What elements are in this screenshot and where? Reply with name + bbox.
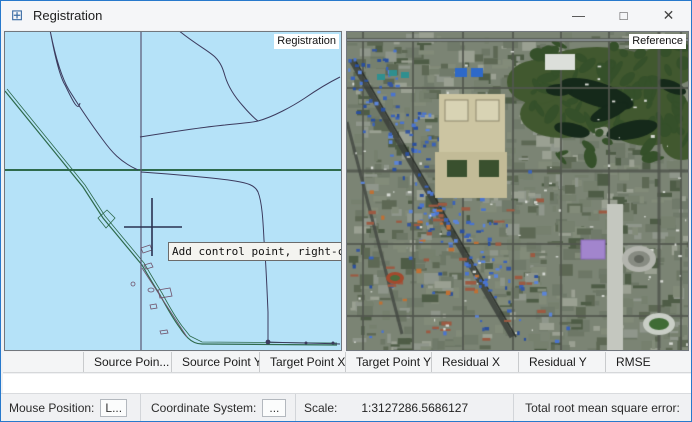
column-header-rmse[interactable]: RMSE [606, 352, 691, 372]
registration-window-icon: ⊞ [9, 8, 25, 24]
column-header-target-y[interactable]: Target Point Y [346, 352, 432, 372]
column-header-source-x[interactable]: Source Poin... [84, 352, 172, 372]
close-button[interactable]: ✕ [646, 1, 691, 30]
coordinate-system-label: Coordinate System: [151, 401, 256, 415]
vector-map-drawing [5, 32, 341, 350]
minimize-button[interactable]: — [556, 1, 601, 30]
coordinate-system-section: Coordinate System: ... [141, 394, 296, 421]
window-title: Registration [33, 8, 102, 23]
mouse-position-value[interactable]: L... [100, 399, 127, 417]
map-node-dot-3 [332, 342, 335, 345]
mouse-position-section: Mouse Position: L... [1, 394, 141, 421]
total-rmse-label: Total root mean square error: [525, 401, 680, 415]
scale-value: 1:3127286.5686127 [361, 401, 468, 415]
title-bar: ⊞ Registration — □ ✕ [1, 1, 691, 30]
contour-line-a [50, 32, 138, 170]
control-point-table-header: Source Poin... Source Point Y Target Poi… [3, 352, 691, 373]
registration-map-panel[interactable]: Registration Add control point, right-cl… [4, 31, 342, 351]
map-node-dot-2 [305, 342, 308, 345]
control-point-table-body[interactable] [3, 374, 691, 393]
window-controls: — □ ✕ [556, 1, 691, 30]
column-header-residual-x[interactable]: Residual X [432, 352, 519, 372]
coastline-path [5, 91, 337, 345]
reference-map-panel[interactable]: Reference [346, 31, 689, 351]
add-control-point-tooltip: Add control point, right-cli [168, 242, 342, 261]
column-header-index[interactable] [3, 352, 84, 372]
status-bar: Mouse Position: L... Coordinate System: … [1, 393, 691, 421]
total-rmse-section: Total root mean square error: [514, 394, 691, 421]
contour-line-c [140, 77, 340, 137]
contour-line-b [178, 32, 258, 121]
shore-detail-line [142, 268, 187, 337]
registration-window: ⊞ Registration — □ ✕ [0, 0, 692, 422]
right-panel-label: Reference [629, 34, 686, 49]
left-panel-label: Registration [274, 34, 339, 49]
mouse-position-label: Mouse Position: [9, 401, 94, 415]
satellite-image [347, 32, 688, 350]
scale-section: Scale: 1:3127286.5686127 [296, 394, 514, 421]
column-header-target-x[interactable]: Target Point X [260, 352, 346, 372]
column-header-source-y[interactable]: Source Point Y [172, 352, 260, 372]
column-header-residual-y[interactable]: Residual Y [519, 352, 606, 372]
scale-label: Scale: [304, 401, 337, 415]
coastline-path-2 [7, 89, 337, 343]
maximize-button[interactable]: □ [601, 1, 646, 30]
coordinate-system-value[interactable]: ... [262, 399, 286, 417]
